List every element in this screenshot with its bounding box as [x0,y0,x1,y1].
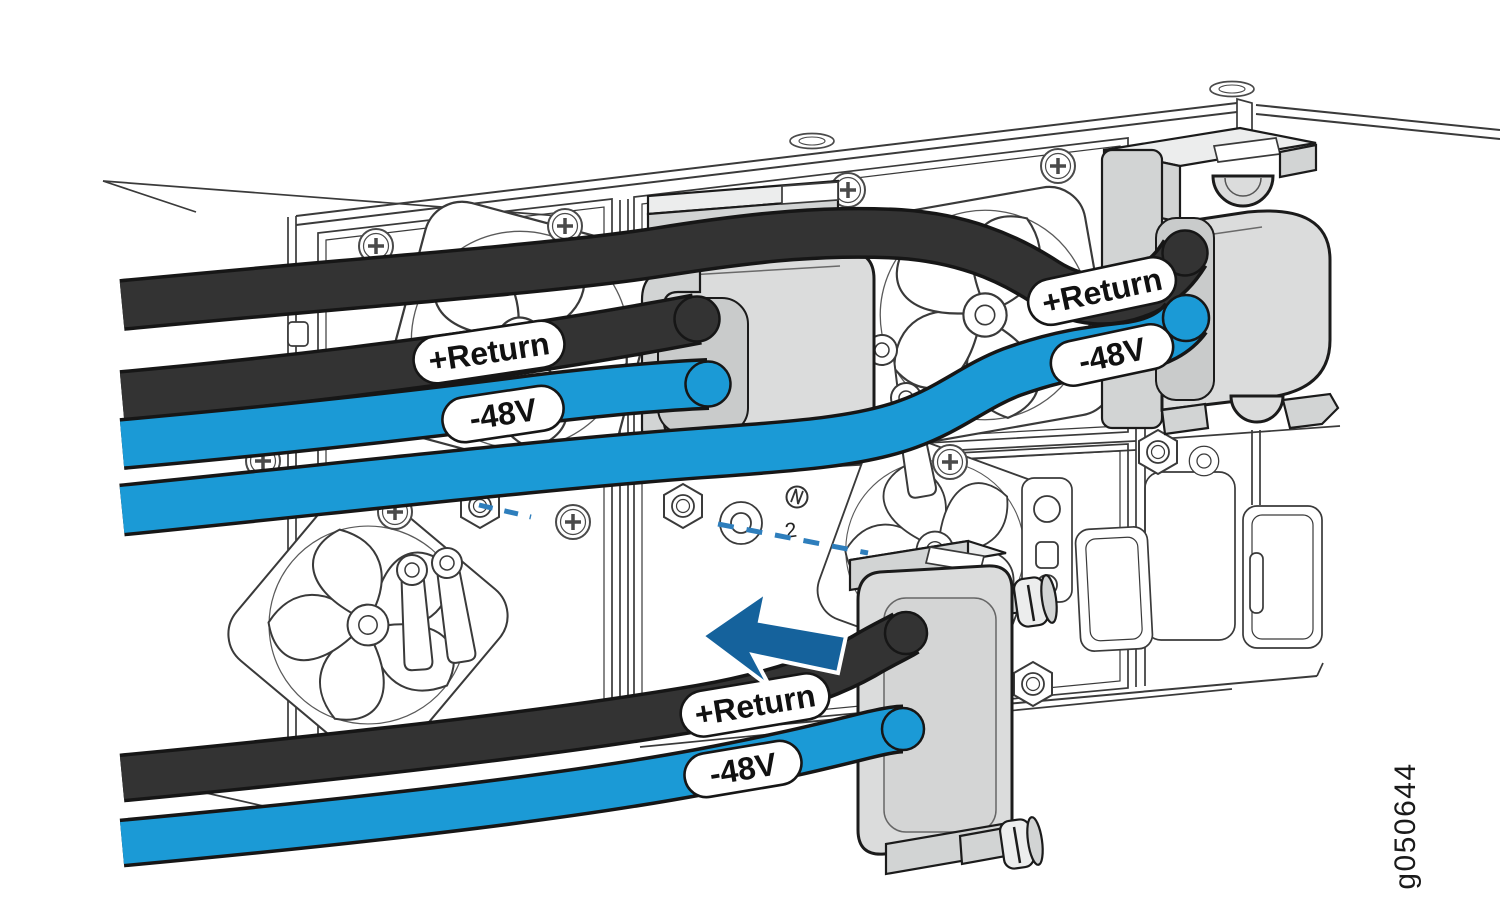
figure-canvas: 2 [0,0,1500,900]
terminal-stud [664,484,702,528]
connector-notch [782,182,838,204]
terminal-washer [720,502,762,544]
terminal-stud [1014,662,1052,706]
terminal-cover [1075,526,1153,652]
terminal-washer [1189,446,1218,475]
ground-symbol-icon [787,487,808,508]
figure-id: g050644 [1389,762,1422,889]
edge-latch [288,322,308,346]
power-cabling-diagram: 2 [0,0,1500,900]
terminal-stud [1139,430,1177,474]
